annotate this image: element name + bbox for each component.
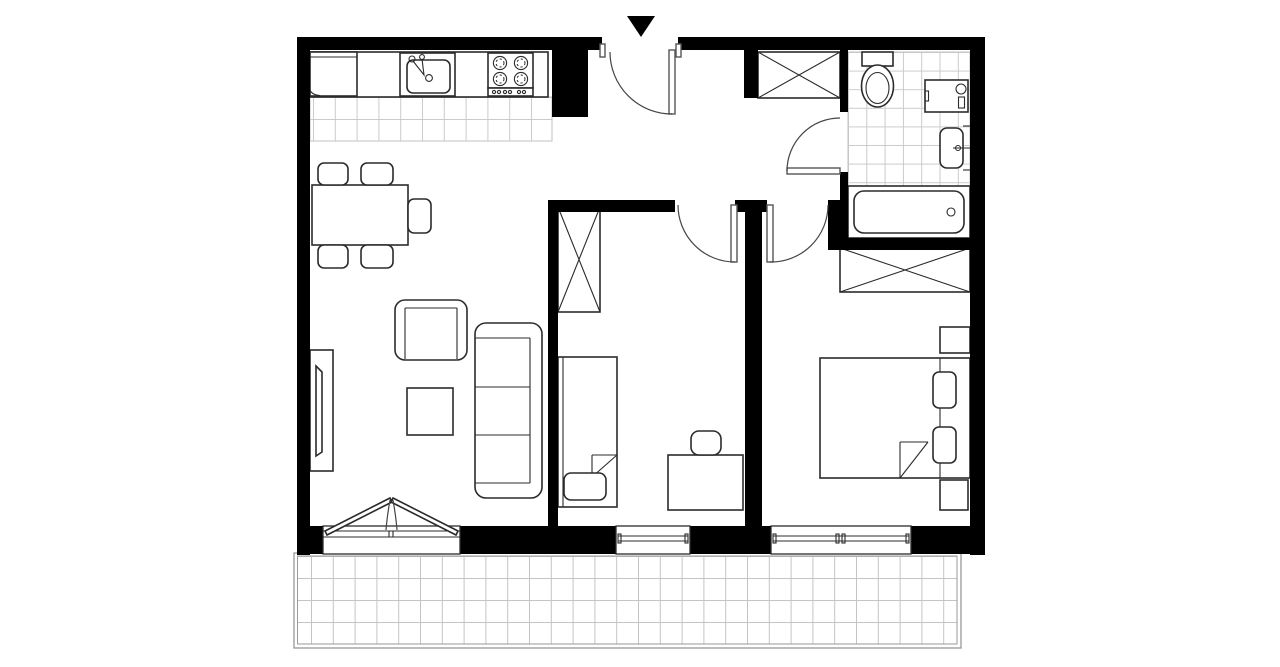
toilet <box>862 52 894 107</box>
coffee-table <box>407 388 453 435</box>
pillow <box>933 427 956 463</box>
sofa <box>475 323 542 498</box>
fridge <box>310 52 357 96</box>
bedroom2-window <box>771 526 911 554</box>
hallway-closet <box>758 52 840 98</box>
balcony <box>294 553 961 648</box>
bedroom2-wardrobe <box>840 248 970 292</box>
bedroom1-wardrobe <box>558 207 600 312</box>
pillow <box>564 473 606 500</box>
kitchen-tile-floor <box>310 97 552 141</box>
pillow <box>933 372 956 408</box>
desk-chair <box>691 431 721 455</box>
double-bed <box>820 358 970 478</box>
nightstand-bottom <box>940 480 968 510</box>
kitchen-sink <box>400 53 455 96</box>
floor-plan <box>0 0 1280 667</box>
stove <box>488 53 533 96</box>
desk <box>668 455 743 510</box>
nightstand-top <box>940 327 970 353</box>
french-door-sill <box>323 526 460 554</box>
washing-machine <box>925 80 968 112</box>
armchair <box>395 300 467 360</box>
tv-stand <box>310 350 333 471</box>
bathtub <box>848 186 970 238</box>
bedroom1-window <box>616 526 690 554</box>
single-bed <box>558 357 617 507</box>
dining-table <box>312 185 408 245</box>
